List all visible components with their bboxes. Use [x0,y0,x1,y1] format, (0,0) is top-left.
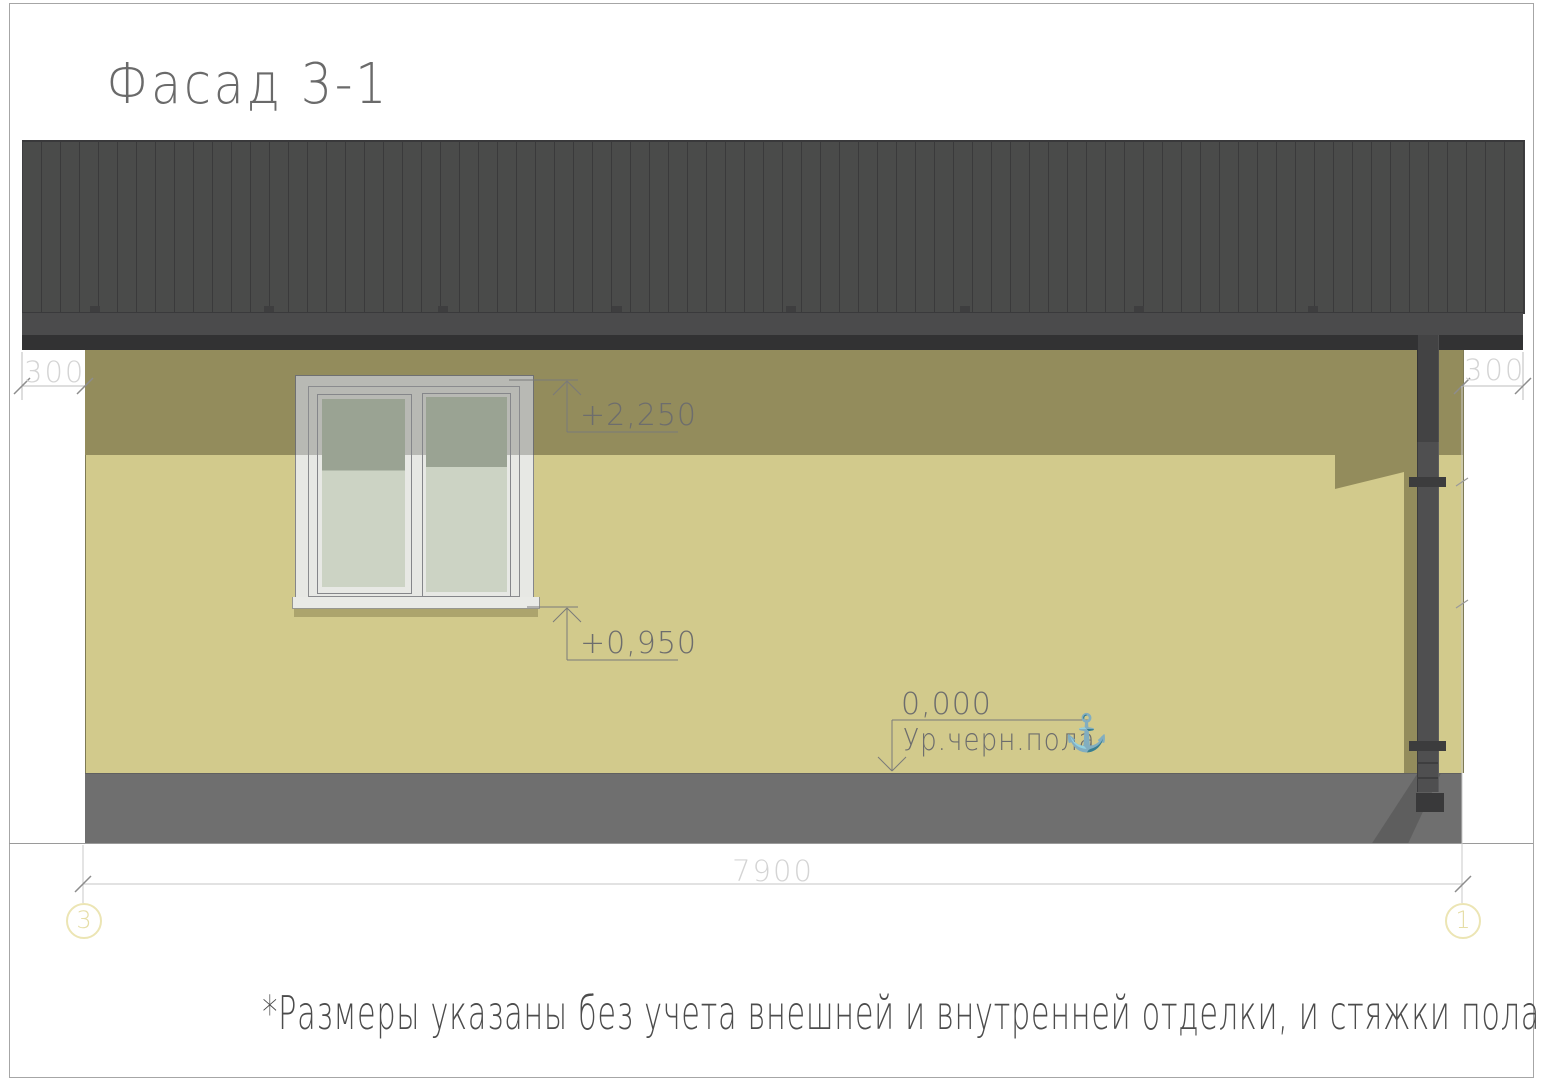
axis-bubble-left-label: 3 [67,906,101,934]
window-glass-left [322,399,405,587]
downpipe-wall-shadow [1404,455,1418,773]
downpipe-joint [1417,777,1438,779]
ground-line [9,843,1533,844]
window-sill [292,597,540,609]
level-floor-value: 0,000 [901,687,992,722]
drawing-sheet: Фасад 3-1 [0,0,1543,1080]
window-glass-right [426,397,507,592]
eave-shadow-band [85,350,1463,455]
downpipe-bracket-lower [1409,741,1446,751]
level-window-head-value: +2,250 [580,398,697,433]
dim-total-width-value: 7900 [698,854,848,888]
drawing-title: Фасад 3-1 [106,52,389,117]
level-window-sill-value: +0,950 [580,626,697,661]
downpipe-outlet [1416,793,1444,812]
downpipe-upper-shade [1417,335,1439,442]
fascia-board [22,335,1523,350]
footnote: *Размеры указаны без учета внешней и вну… [262,986,1280,1040]
downpipe-bracket-upper [1409,477,1446,487]
anchor-icon: ⚓ [1064,712,1109,754]
axis-bubble-right-label: 1 [1446,906,1480,934]
plinth [85,773,1462,844]
gutter [22,312,1523,337]
dim-left-overhang-value: 300 [24,355,82,389]
window-sill-shadow [294,609,538,617]
dim-right-overhang-value: 300 [1464,353,1522,387]
roof-ribbed-surface [22,140,1525,314]
downpipe-joint [1417,762,1438,764]
